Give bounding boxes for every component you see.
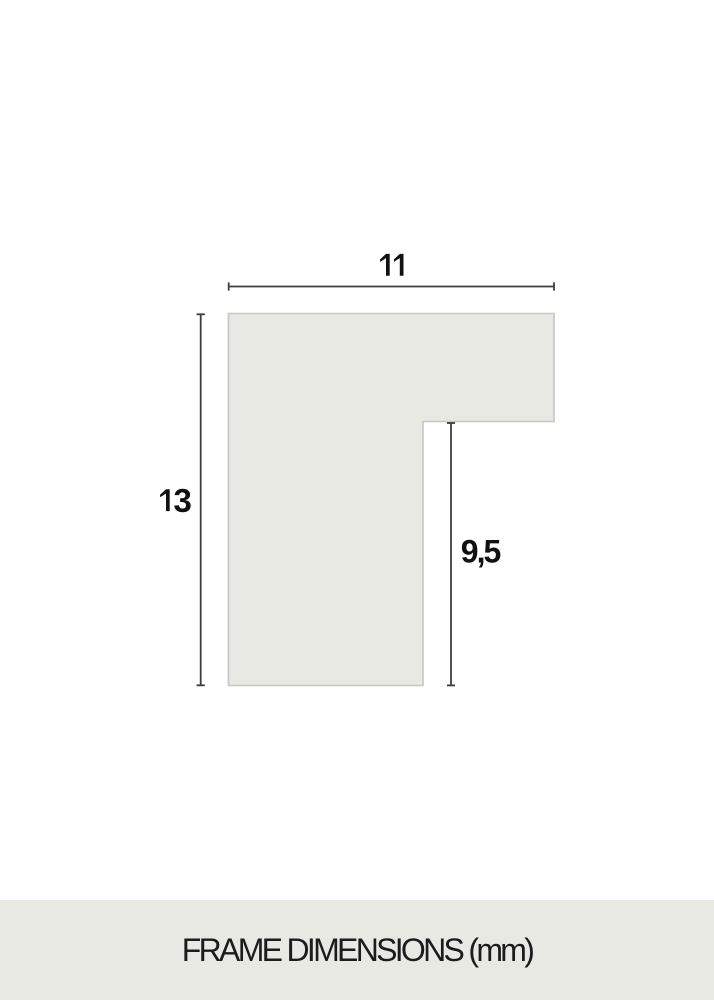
svg-text:FRAME DIMENSIONS (mm): FRAME DIMENSIONS (mm) [182,932,533,968]
svg-text:9,5: 9,5 [461,534,501,570]
svg-text:3: 3 [174,482,192,519]
